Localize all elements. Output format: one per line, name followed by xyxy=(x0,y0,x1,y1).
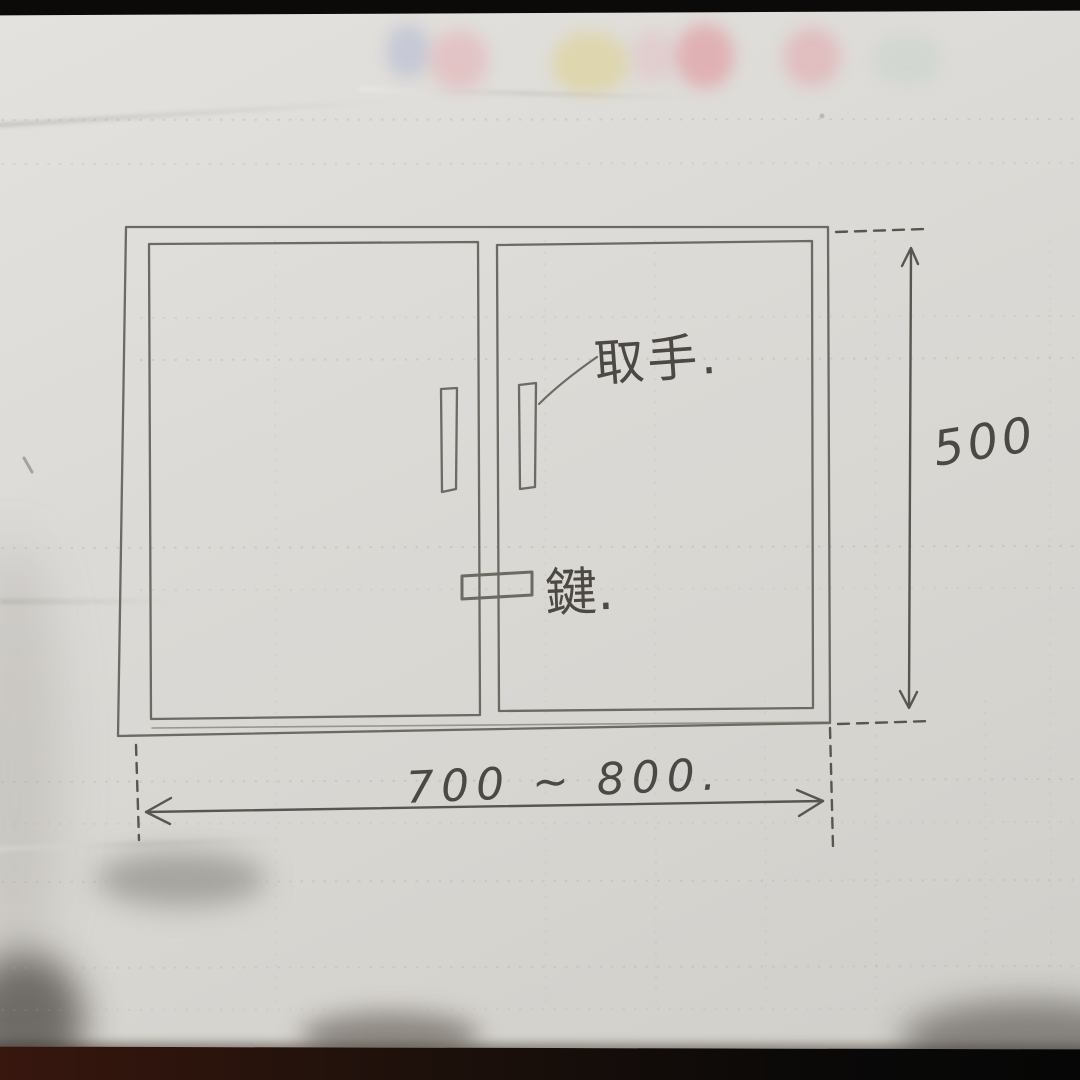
width-arrowhead-right xyxy=(797,790,823,816)
lock-label: 鍵. xyxy=(544,549,615,626)
handle-label: 取手. xyxy=(592,316,722,397)
height-extension-line-top xyxy=(836,229,926,232)
left-door xyxy=(149,242,480,719)
outer-frame xyxy=(118,227,830,736)
cabinet-sketch xyxy=(0,0,1080,1080)
lock-plate xyxy=(462,572,532,599)
pencil-speck xyxy=(820,114,825,119)
handle-leader-line xyxy=(539,357,597,404)
height-extension-line-bottom xyxy=(838,721,930,724)
table-surface-bottom xyxy=(0,1047,1080,1080)
left-handle xyxy=(441,388,457,492)
width-extension-line-right xyxy=(830,728,833,847)
pencil-speck xyxy=(24,458,32,472)
right-handle xyxy=(519,383,536,489)
height-dimension-line xyxy=(909,249,911,707)
photo-scene: 取手. 鍵. 500 700 ~ 800. xyxy=(0,0,1080,1080)
right-door xyxy=(497,241,813,711)
width-extension-line-left xyxy=(136,745,139,840)
